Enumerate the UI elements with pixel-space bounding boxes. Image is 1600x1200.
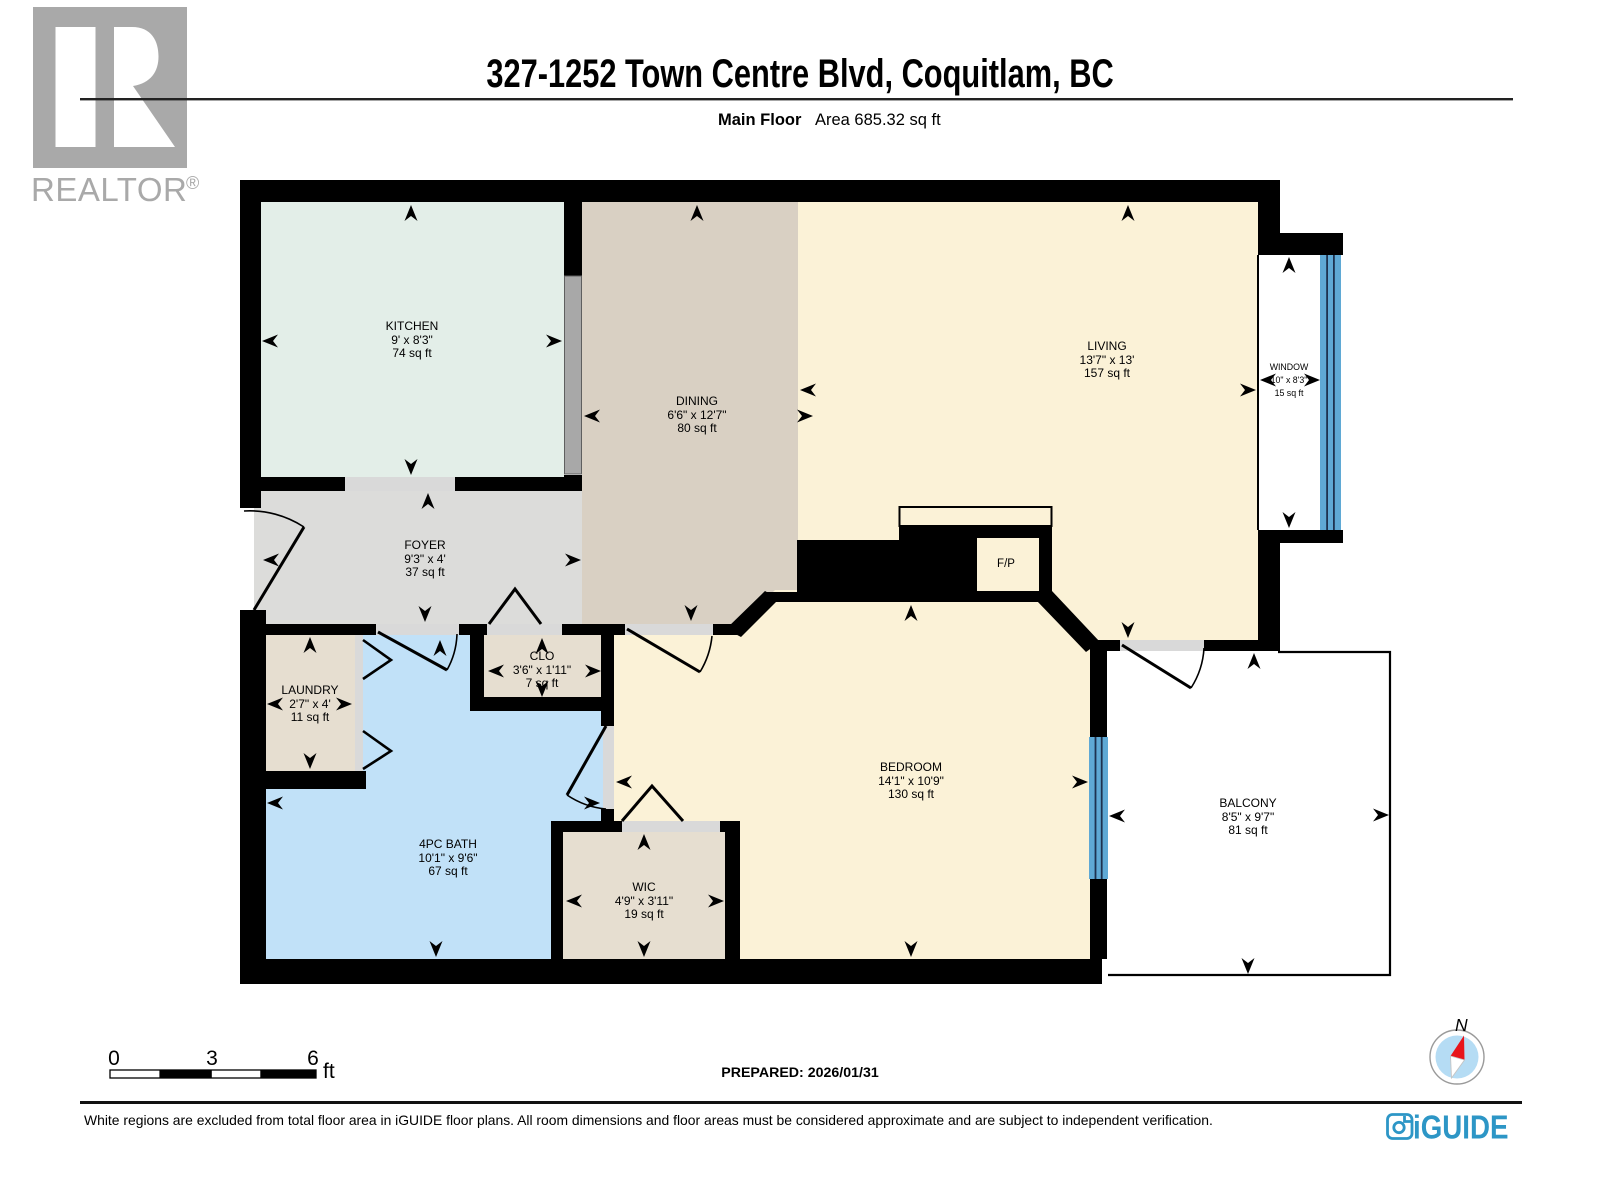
svg-text:11 sq ft: 11 sq ft	[291, 710, 330, 724]
svg-text:37 sq ft: 37 sq ft	[405, 565, 445, 579]
svg-text:3'6" x 1'11": 3'6" x 1'11"	[513, 663, 571, 677]
svg-text:ft: ft	[323, 1060, 335, 1083]
svg-text:67 sq ft: 67 sq ft	[428, 864, 468, 878]
svg-text:80 sq ft: 80 sq ft	[677, 421, 717, 435]
svg-text:White regions are excluded fro: White regions are excluded from total fl…	[84, 1112, 1213, 1128]
svg-text:BALCONY: BALCONY	[1219, 796, 1276, 810]
svg-text:KITCHEN: KITCHEN	[386, 319, 439, 333]
svg-text:BEDROOM: BEDROOM	[880, 760, 942, 774]
svg-text:19 sq ft: 19 sq ft	[624, 907, 664, 921]
svg-text:LAUNDRY: LAUNDRY	[281, 683, 338, 697]
svg-text:9'3" x 4': 9'3" x 4'	[404, 552, 446, 566]
svg-text:4'9" x 3'11": 4'9" x 3'11"	[615, 894, 673, 908]
svg-text:4PC BATH: 4PC BATH	[419, 837, 477, 851]
svg-text:WINDOW: WINDOW	[1270, 362, 1309, 372]
svg-text:74 sq ft: 74 sq ft	[392, 346, 432, 360]
svg-text:7 sq ft: 7 sq ft	[526, 676, 559, 690]
svg-text:PREPARED: 2026/01/31: PREPARED: 2026/01/31	[721, 1065, 879, 1081]
svg-text:13'7" x 13': 13'7" x 13'	[1080, 353, 1135, 367]
svg-text:130 sq ft: 130 sq ft	[888, 787, 935, 801]
svg-text:3: 3	[206, 1047, 218, 1070]
svg-text:N: N	[1455, 1015, 1468, 1035]
svg-text:10'1" x 9'6": 10'1" x 9'6"	[418, 851, 477, 865]
svg-text:81 sq ft: 81 sq ft	[1228, 823, 1268, 837]
svg-text:8'5" x 9'7": 8'5" x 9'7"	[1222, 810, 1274, 824]
svg-text:®: ®	[186, 173, 199, 193]
svg-text:DINING: DINING	[676, 394, 718, 408]
svg-text:CLO: CLO	[530, 649, 555, 663]
svg-text:REALTOR: REALTOR	[31, 171, 187, 208]
svg-text:FOYER: FOYER	[404, 538, 446, 552]
svg-text:6: 6	[307, 1047, 319, 1070]
svg-text:F/P: F/P	[997, 558, 1015, 570]
svg-text:0: 0	[108, 1047, 120, 1070]
svg-text:14'1" x 10'9": 14'1" x 10'9"	[878, 774, 944, 788]
svg-text:Area 685.32 sq ft: Area 685.32 sq ft	[815, 111, 941, 129]
svg-text:iGUIDE: iGUIDE	[1413, 1109, 1508, 1146]
svg-text:Main Floor: Main Floor	[718, 111, 802, 129]
svg-text:LIVING: LIVING	[1087, 339, 1126, 353]
svg-text:2'7" x 4': 2'7" x 4'	[289, 697, 331, 711]
svg-text:10" x 8'3": 10" x 8'3"	[1271, 375, 1308, 385]
svg-text:157 sq ft: 157 sq ft	[1084, 366, 1131, 380]
svg-text:15 sq ft: 15 sq ft	[1275, 388, 1304, 398]
svg-text:327-1252 Town Centre Blvd, Coq: 327-1252 Town Centre Blvd, Coquitlam, BC	[486, 51, 1113, 96]
svg-text:WIC: WIC	[632, 880, 656, 894]
svg-text:6'6" x 12'7": 6'6" x 12'7"	[667, 408, 726, 422]
svg-text:9' x 8'3": 9' x 8'3"	[391, 333, 433, 347]
